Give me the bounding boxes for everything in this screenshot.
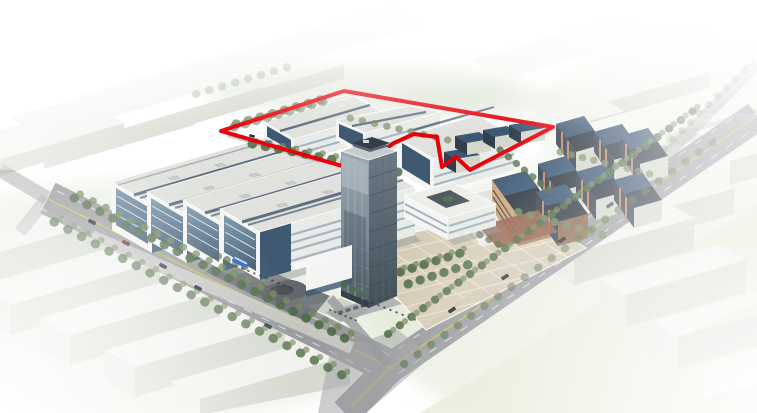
rendering-canvas: Bird's-eye 3D rendering of an industrial…	[0, 0, 757, 413]
aerial-rendering: Bird's-eye 3D rendering of an industrial…	[0, 0, 757, 413]
white-fade-overlays	[0, 0, 757, 413]
